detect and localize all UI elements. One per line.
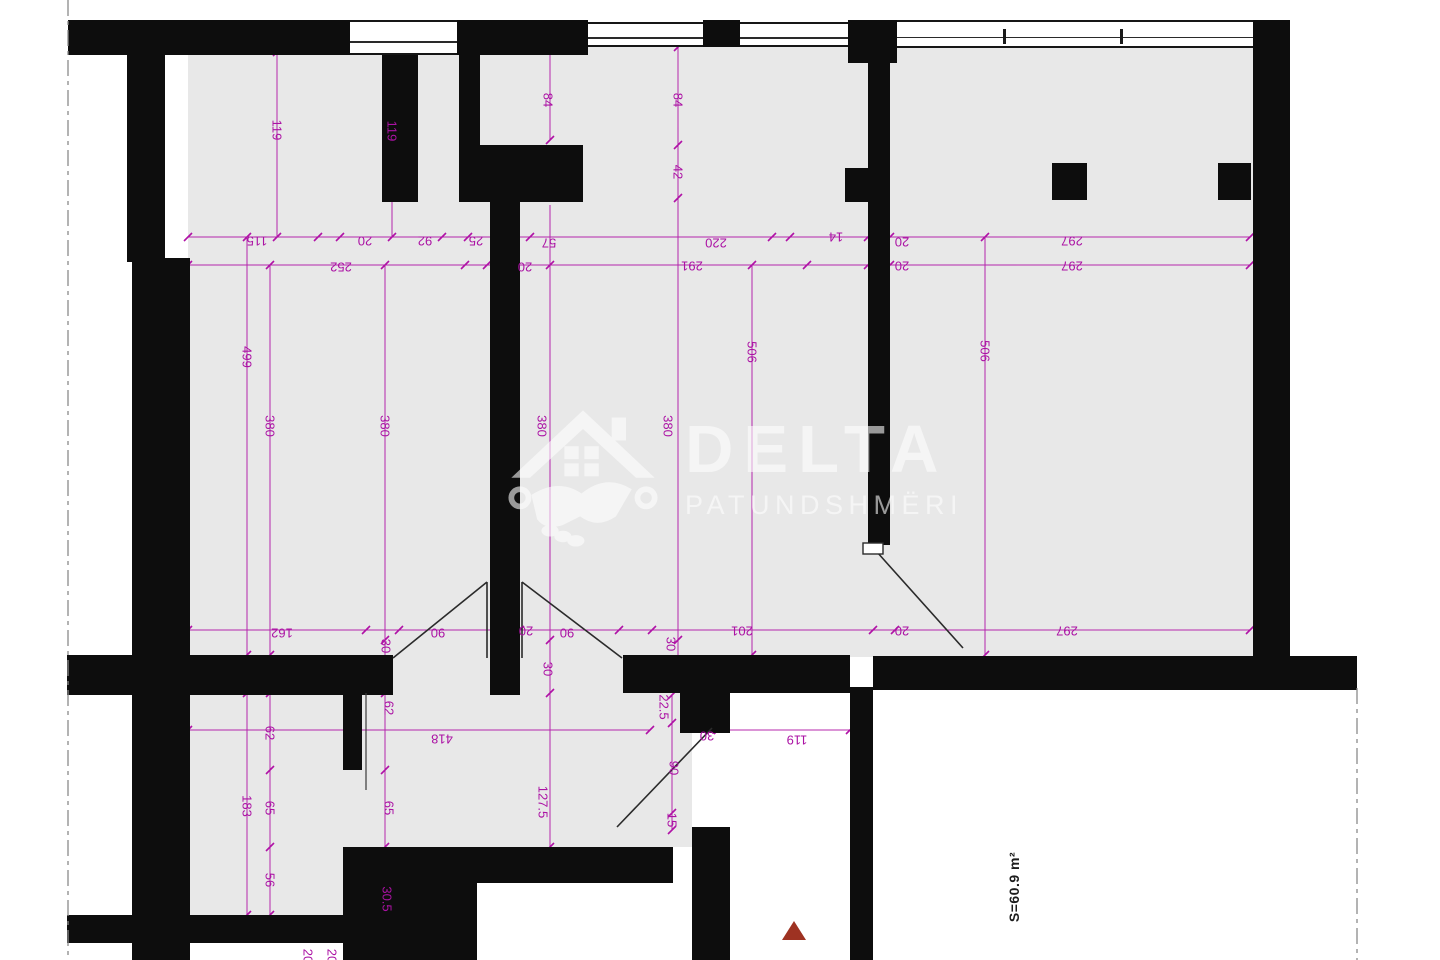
dimension-label: 506: [746, 341, 759, 363]
dimension-label: 30: [665, 637, 678, 651]
boundary-dashed-lines: [68, 0, 1357, 960]
dimension-label: 201: [731, 625, 753, 638]
dimension-label: 90: [431, 627, 445, 640]
dimension-label: 380: [662, 415, 675, 437]
dimension-label: 115: [247, 235, 268, 248]
dimension-label: 119: [787, 734, 808, 747]
dimension-label: 291: [681, 260, 703, 273]
entrance-marker-icon: [782, 921, 806, 940]
dimension-label: 506: [979, 340, 992, 362]
dimension-label: 297: [1061, 235, 1083, 248]
dimension-label: 22.5: [658, 694, 671, 719]
dimension-label: 20: [519, 625, 533, 638]
floor-plan: 1152092255722014202972522029120297119119…: [0, 0, 1440, 960]
dimension-label: 20: [518, 261, 532, 274]
dimension-label: 15: [666, 813, 679, 827]
dimension-label: 30.5: [381, 886, 394, 911]
dimension-label: 297: [1056, 625, 1078, 638]
area-label: S=60.9 m²: [1006, 852, 1022, 922]
dimension-label: 499: [241, 346, 254, 368]
dimension-label: 380: [264, 415, 277, 437]
dimension-label: 30: [700, 730, 714, 743]
dimension-label: 62: [383, 701, 396, 715]
dimension-label: 62: [264, 726, 277, 740]
dimension-label: 220: [705, 237, 727, 250]
dimension-label: 25: [469, 235, 483, 248]
dimension-label: 30: [542, 662, 555, 676]
dimension-label: 162: [271, 627, 293, 640]
dimension-label: 20: [895, 260, 909, 273]
dimension-label: 297: [1061, 260, 1083, 273]
dimension-label: 119: [271, 120, 284, 141]
dimension-label: 90: [560, 627, 574, 640]
dimension-label: 65: [264, 801, 277, 815]
dimension-label: 84: [672, 93, 685, 107]
dimension-label: 20: [326, 949, 339, 960]
dimension-label: 30: [380, 639, 393, 653]
dimension-label: 380: [379, 415, 392, 437]
door-linework-layer: [0, 0, 1440, 960]
dimension-label: 56: [264, 873, 277, 887]
dimension-label: 20: [895, 236, 909, 249]
dimension-label: 119: [386, 121, 399, 142]
dimension-label: 380: [536, 415, 549, 437]
dimension-label: 20: [358, 235, 372, 248]
dimension-label: 127.5: [537, 786, 550, 819]
dimension-label: 20: [302, 949, 315, 960]
dimension-label: 90: [668, 761, 681, 775]
dimension-label: 20: [895, 625, 909, 638]
dimension-label: 418: [431, 733, 453, 746]
dimension-label: 252: [330, 261, 352, 274]
dimension-label: 65: [383, 801, 396, 815]
dimension-label: 42: [672, 165, 685, 179]
dimension-label: 92: [418, 235, 432, 248]
door-leaf: [863, 543, 883, 554]
dimension-label: 183: [241, 795, 254, 817]
dimension-label: 84: [542, 93, 555, 107]
dimension-label: 57: [542, 237, 556, 250]
dimension-label: 14: [829, 231, 843, 244]
door-swings: [393, 552, 963, 827]
